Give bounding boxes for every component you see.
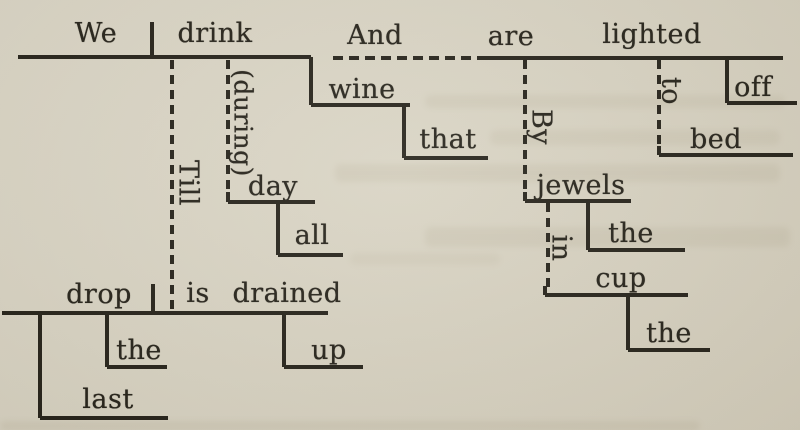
scanned-book-page: WedrinkAndarelightedwinethatBytooffbedje… bbox=[0, 0, 800, 430]
word-to: to bbox=[658, 77, 685, 105]
word-jewels: jewels bbox=[537, 172, 626, 199]
line-that-step bbox=[402, 105, 407, 158]
word-off: off bbox=[734, 74, 772, 101]
line-jewels-the-step bbox=[586, 201, 591, 250]
word-cup: cup bbox=[595, 265, 646, 292]
word-the-drop: the bbox=[116, 337, 162, 364]
word-bed: bed bbox=[690, 126, 742, 153]
word-the-jewels: the bbox=[608, 220, 654, 247]
word-is: is bbox=[186, 280, 210, 307]
dashed-line-and-conjunction-connector bbox=[333, 56, 480, 61]
word-till: Till bbox=[175, 160, 202, 206]
word-the-cup: the bbox=[646, 320, 692, 347]
line-off-step bbox=[725, 58, 730, 103]
word-drop: drop bbox=[66, 281, 132, 308]
sentence-diagram: WedrinkAndarelightedwinethatBytooffbedje… bbox=[0, 0, 800, 430]
word-day: day bbox=[248, 173, 298, 200]
line-all-base bbox=[278, 253, 343, 258]
line-clause3-base bbox=[2, 311, 328, 316]
line-all-step bbox=[276, 202, 281, 255]
line-drop-the-step bbox=[105, 313, 110, 367]
line-cup-the-step bbox=[626, 295, 631, 350]
word-by: By bbox=[528, 109, 555, 145]
word-lighted: lighted bbox=[602, 21, 702, 48]
line-up-step bbox=[282, 313, 287, 367]
line-last-step bbox=[38, 313, 43, 418]
line-subject-verb-divider-1 bbox=[150, 22, 155, 57]
word-drained: drained bbox=[232, 280, 341, 307]
word-during: (during) bbox=[231, 69, 256, 177]
line-wine-object-step bbox=[309, 57, 314, 105]
word-drink: drink bbox=[177, 20, 252, 47]
word-we: We bbox=[75, 20, 118, 47]
word-all: all bbox=[295, 222, 330, 249]
word-are: are bbox=[488, 23, 534, 50]
word-that: that bbox=[419, 126, 476, 153]
word-up: up bbox=[311, 337, 347, 364]
word-and: And bbox=[347, 22, 403, 49]
line-clause1-base bbox=[18, 55, 311, 60]
word-in: in bbox=[548, 234, 575, 261]
line-that-base bbox=[404, 156, 488, 161]
line-last-base bbox=[40, 416, 168, 421]
line-subject-verb-divider-2 bbox=[151, 284, 156, 313]
word-last: last bbox=[82, 386, 133, 413]
word-wine: wine bbox=[328, 76, 395, 103]
